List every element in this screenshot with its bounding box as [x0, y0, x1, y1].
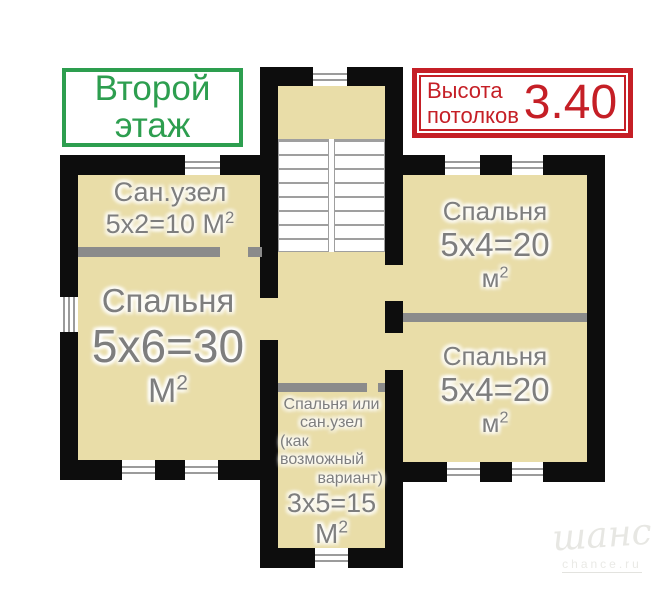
optional-room-area: 3х5=15	[280, 488, 383, 519]
bedroom-left-name: Спальня	[70, 281, 266, 321]
floor-plan-page: Второй этаж Высота потолков 3.40 Сан.узе…	[0, 0, 670, 606]
staircase	[278, 139, 385, 252]
window-right-top-1	[445, 155, 480, 175]
bedroom-top-right-area: 5х4=20	[400, 227, 590, 263]
wall-tower-right-stub	[385, 301, 403, 333]
bedroom-left-unit: М2	[70, 371, 266, 412]
window-left-bottom-1	[122, 460, 155, 480]
partition-bathroom-stub	[248, 247, 262, 257]
bathroom-name: Сан.узел	[78, 176, 262, 208]
bedroom-left-area: 5х6=30	[70, 321, 266, 372]
ceiling-height-inner: Высота потолков 3.40	[419, 75, 626, 131]
stair-flight-right	[334, 139, 385, 252]
stair-flight-left	[278, 139, 329, 252]
ceiling-height-caption: Высота потолков	[427, 78, 519, 129]
optional-room-line5: вариант)	[280, 470, 383, 488]
partition-bathroom	[78, 247, 220, 257]
window-left-bottom-2	[185, 460, 218, 480]
watermark-site: chance.ru	[562, 557, 642, 573]
room-label-bathroom: Сан.узел 5х2=10 М2	[78, 176, 262, 241]
bedroom-top-right-name: Спальня	[400, 196, 590, 227]
optional-room-line2: сан.узел	[280, 414, 383, 432]
watermark: шанс chance.ru	[538, 518, 666, 573]
floor-title-line1: Второй	[95, 71, 211, 108]
window-tower-top	[313, 67, 347, 86]
window-right-top-2	[512, 155, 543, 175]
partition-optional-room-stub	[378, 383, 385, 392]
window-right-bottom-1	[447, 462, 480, 482]
optional-room-line3: (как	[280, 433, 383, 451]
wall-right-wing-top	[385, 155, 605, 175]
wall-left-wing-top	[60, 155, 278, 175]
ceiling-height-box: Высота потолков 3.40	[412, 68, 633, 138]
floor-title-box: Второй этаж	[62, 68, 243, 147]
floor-title-line2: этаж	[115, 108, 191, 145]
bedroom-top-right-unit: м2	[400, 263, 590, 294]
bathroom-area: 5х2=10 М2	[78, 208, 262, 240]
room-label-bedroom-top-right: Спальня 5х4=20 м2	[400, 196, 590, 295]
optional-room-line4: возможный	[280, 451, 383, 469]
ceiling-height-value: 3.40	[523, 81, 618, 124]
watermark-brand: шанс	[537, 514, 667, 559]
wall-tower-left-upper	[260, 67, 278, 298]
room-label-bedroom-left: Спальня 5х6=30 М2	[70, 281, 266, 412]
window-right-bottom-2	[512, 462, 543, 482]
room-label-bedroom-optional: Спальня или сан.узел (как возможный вари…	[280, 396, 383, 548]
wall-left-wing-bottom	[60, 460, 278, 480]
ceiling-caption-line2: потолков	[427, 103, 519, 128]
wall-right-wing-bottom	[385, 462, 605, 482]
bedroom-bottom-right-area: 5х4=20	[400, 372, 590, 408]
window-bottom-tower	[315, 548, 348, 568]
ceiling-caption-line1: Высота	[427, 78, 519, 103]
optional-room-unit: М2	[280, 519, 383, 548]
bedroom-bottom-right-unit: м2	[400, 408, 590, 439]
partition-optional-room	[278, 383, 367, 392]
optional-room-line1: Спальня или	[280, 396, 383, 414]
window-left-wing-top	[185, 155, 220, 175]
bedroom-bottom-right-name: Спальня	[400, 341, 590, 372]
room-label-bedroom-bottom-right: Спальня 5х4=20 м2	[400, 341, 590, 440]
partition-right-bedrooms	[403, 313, 587, 322]
